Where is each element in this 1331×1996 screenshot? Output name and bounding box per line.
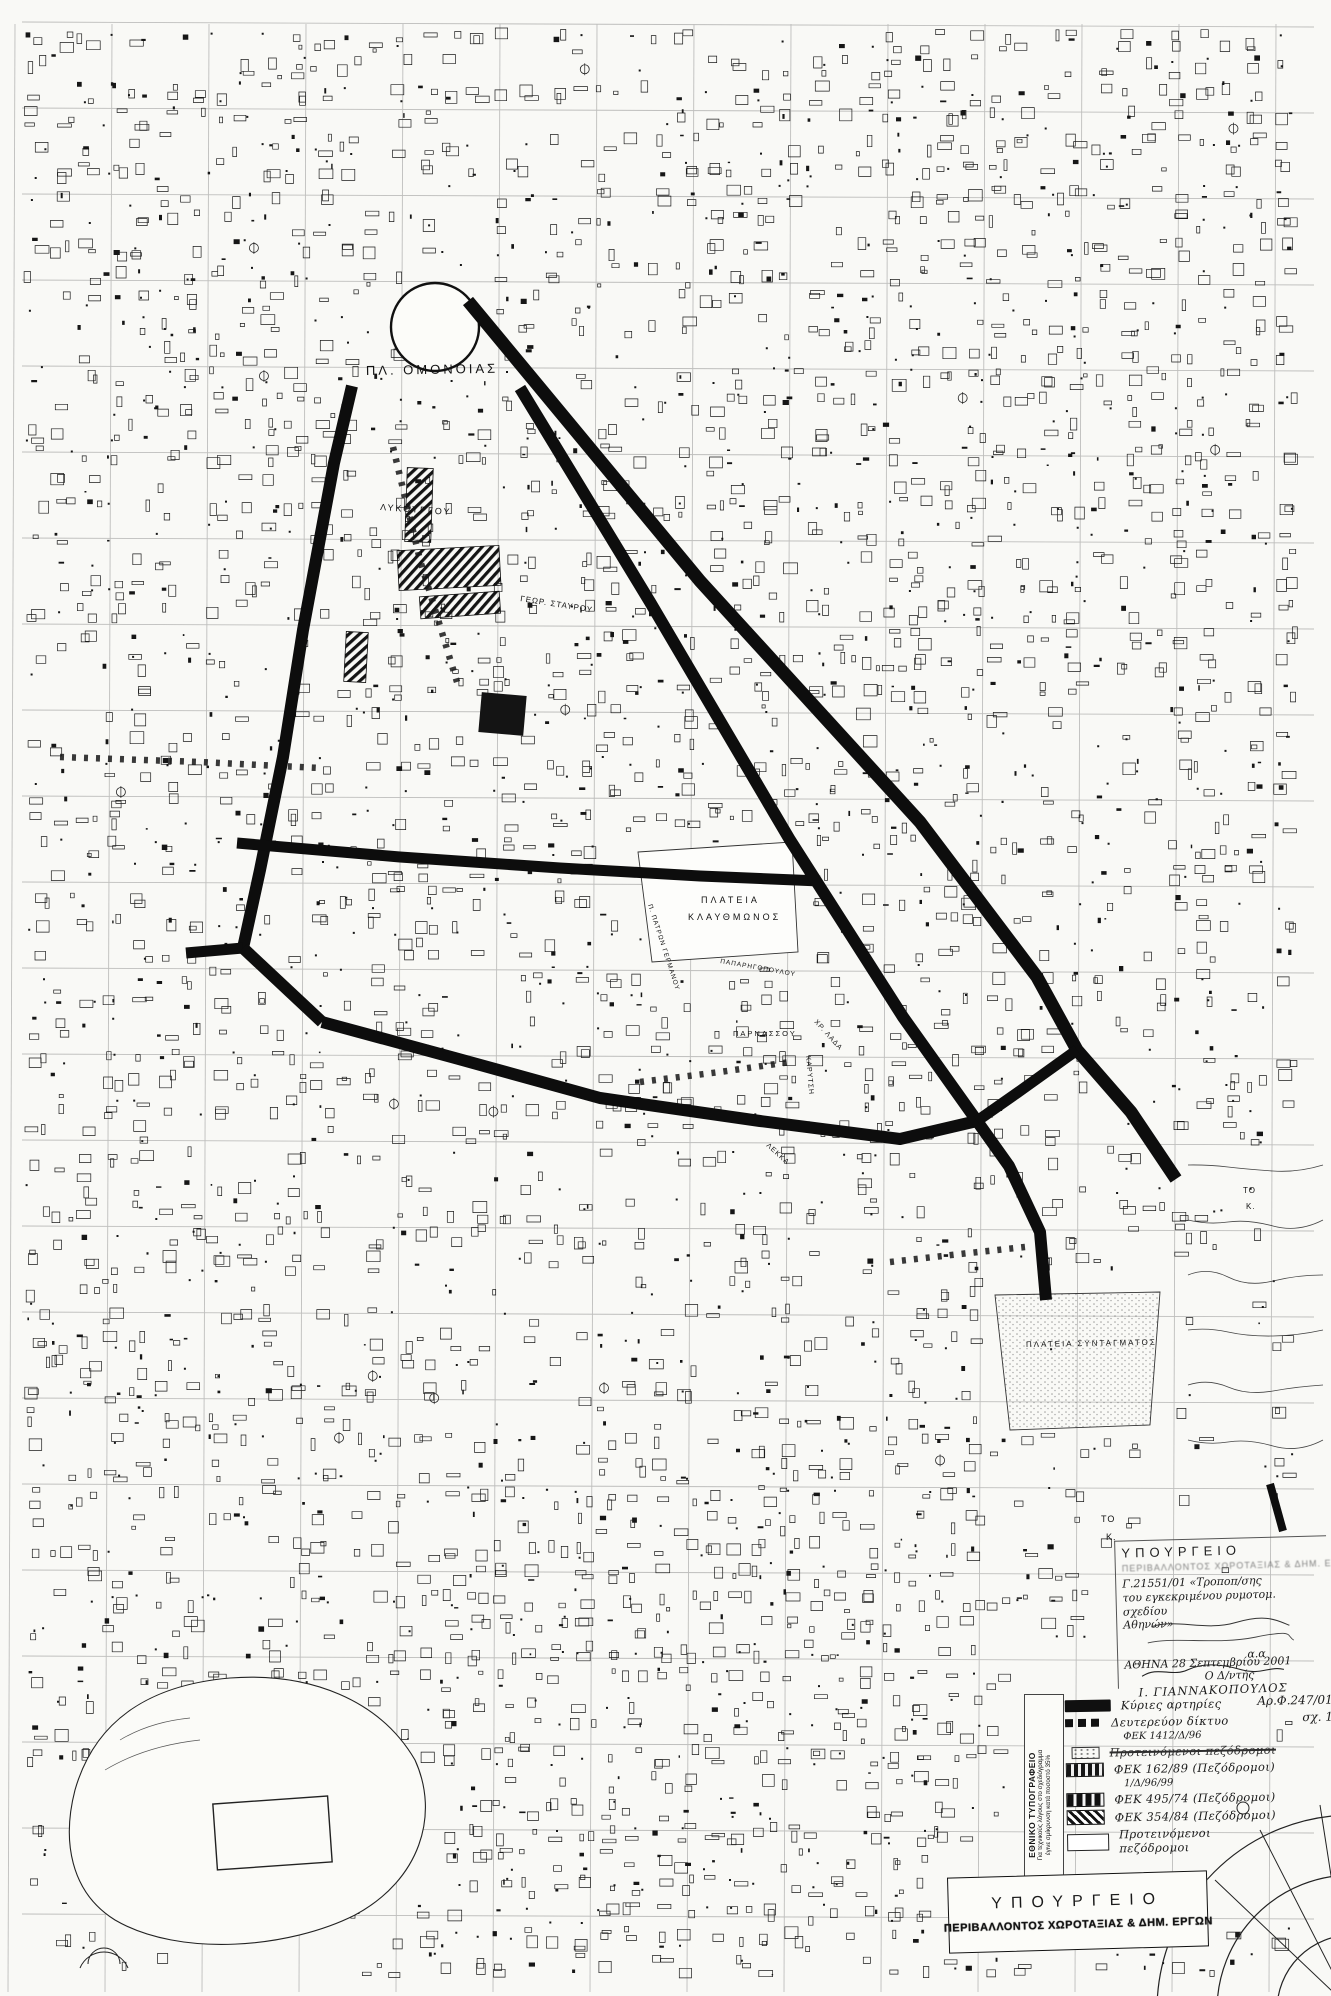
- to-note-2-label: ΤΟ: [1243, 1186, 1256, 1195]
- scanned-city-plan-page: ΠΛ. ΟΜΟΝΟΙΑΣΛΥΚΟΥΡΓΟΥΓΕΩΡ. ΣΤΑΥΡΟΥΠΛΑΤΕΙ…: [0, 0, 1331, 1996]
- klafthmonos-label: ΚΛΑΥΘΜΩΝΟΣ: [688, 912, 781, 922]
- plateia-label: ΠΛΑΤΕΙΑ: [701, 895, 760, 905]
- legend-row-fek-495-74: ΦΕΚ 495/74 (Πεζόδρομοι): [1066, 1789, 1328, 1808]
- title-block: ΥΠΟΥΡΓΕΙΟ ΠΕΡΙΒΑΛΛΟΝΤΟΣ ΧΩΡΟΤΑΞΙΑΣ & ΔΗΜ…: [947, 1870, 1209, 1953]
- stamp-ministry: ΥΠΟΥΡΓΕΙΟ: [1121, 1540, 1320, 1560]
- file-number: Αρ.Φ.247/01: [1257, 1693, 1331, 1708]
- k-note-2-label: Κ.: [1246, 1202, 1256, 1211]
- pl-omonoias-label: ΠΛ. ΟΜΟΝΟΙΑΣ: [366, 361, 498, 378]
- title-ministry: ΥΠΟΥΡΓΕΙΟ: [991, 1891, 1164, 1914]
- dotted-box-swatch-icon: [1071, 1747, 1099, 1759]
- title-department: ΠΕΡΙΒΑΛΛΟΝΤΟΣ ΧΩΡΟΤΑΞΙΑΣ & ΔΗΜ. ΕΡΓΩΝ: [944, 1915, 1213, 1935]
- omonia-circle: [391, 283, 479, 371]
- kaningos-block: [478, 692, 526, 736]
- solid-bar-swatch-icon: [1065, 1699, 1111, 1712]
- map-legend: Κύριες αρτηρίες Αρ.Φ.247/01 Δευτερεύον δ…: [1065, 1692, 1330, 1860]
- legend-label: ΦΕΚ 354/84 (Πεζόδρομοι): [1115, 1807, 1276, 1824]
- ministry-stamp: ΥΠΟΥΡΓΕΙΟ ΠΕΡΙΒΑΛΛΟΝΤΟΣ ΧΩΡΟΤΑΞΙΑΣ & ΔΗΜ…: [1114, 1535, 1330, 1688]
- legend-label: Προτεινόμενοι πεζόδρομοι: [1119, 1826, 1211, 1856]
- dense-hatch-swatch-icon: [1066, 1793, 1104, 1808]
- to-note-label: ΤΟ: [1101, 1514, 1115, 1524]
- legend-label-struck: Προτεινόμενοι πεζόδρομοι: [1109, 1743, 1276, 1760]
- empty-box-swatch-icon: [1067, 1833, 1109, 1851]
- parnassou-label: ΠΑΡΝΑΣΣΟΥ: [733, 1029, 797, 1038]
- diagonal-hatch-swatch-icon: [1067, 1810, 1105, 1826]
- stamp-role: Ο Δ/ντής: [1204, 1666, 1323, 1682]
- legend-sub-fek: ΦΕΚ 1412/Δ/96: [1123, 1728, 1327, 1743]
- stamp-department: ΠΕΡΙΒΑΛΛΟΝΤΟΣ ΧΩΡΟΤΑΞΙΑΣ & ΔΗΜ. ΕΡΓΩΝ: [1122, 1558, 1321, 1573]
- legend-label: ΦΕΚ 495/74 (Πεζόδρομοι): [1114, 1790, 1275, 1807]
- legend-sub-amendment: 1/Δ/96/99: [1124, 1775, 1328, 1790]
- hatched-box-swatch-icon: [1066, 1763, 1104, 1778]
- legend-label: Δευτερεύον δίκτυο: [1111, 1713, 1229, 1729]
- sheet-number: σχ. 1: [1302, 1710, 1331, 1725]
- legend-label: ΦΕΚ 162/89 (Πεζόδρομοι): [1114, 1760, 1275, 1777]
- legend-row-proposed-pedestrians: Προτεινόμενοι πεζόδρομοι: [1067, 1824, 1329, 1857]
- legend-row-main-arteries: Κύριες αρτηρίες Αρ.Φ.247/01: [1065, 1695, 1327, 1714]
- legend-row-fek-354-84: ΦΕΚ 354/84 (Πεζόδρομοι): [1067, 1806, 1329, 1826]
- syntagma-square: [995, 1292, 1160, 1430]
- legend-label: Κύριες αρτηρίες: [1121, 1697, 1222, 1713]
- dashed-line-swatch-icon: [1065, 1719, 1101, 1728]
- stamp-scribble-icon: [1145, 1609, 1296, 1653]
- legend-row-struck-pedestrians: Προτεινόμενοι πεζόδρομοι: [1065, 1742, 1327, 1761]
- artery-west-stub: [186, 948, 243, 953]
